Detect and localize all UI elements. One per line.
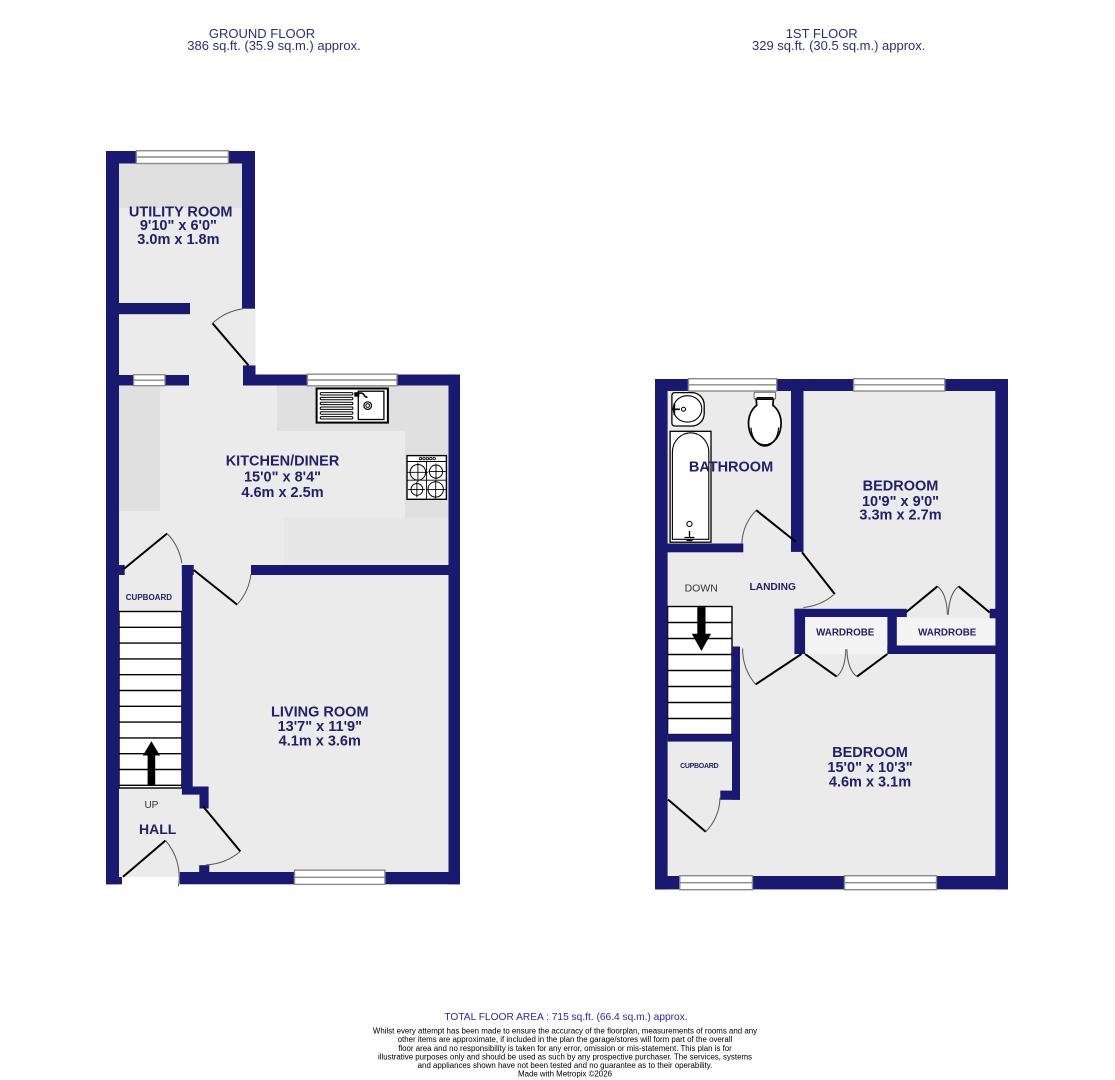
svg-text:WARDROBE: WARDROBE <box>816 628 875 639</box>
svg-text:3.0m x 1.8m: 3.0m x 1.8m <box>137 232 219 248</box>
svg-text:DOWN: DOWN <box>685 583 718 595</box>
svg-text:13'7" x 11'9": 13'7" x 11'9" <box>278 719 362 735</box>
svg-text:HALL: HALL <box>139 821 177 837</box>
svg-text:UP: UP <box>144 800 158 811</box>
svg-text:15'0" x 8'4": 15'0" x 8'4" <box>244 470 321 486</box>
svg-text:BEDROOM: BEDROOM <box>863 479 939 495</box>
svg-text:CUPBOARD: CUPBOARD <box>126 593 172 602</box>
svg-text:386 sq.ft. (35.9 sq.m.) approx: 386 sq.ft. (35.9 sq.m.) approx. <box>187 38 360 53</box>
svg-text:KITCHEN/DINER: KITCHEN/DINER <box>226 453 340 469</box>
svg-text:LANDING: LANDING <box>749 582 795 593</box>
svg-text:Made with Metropix ©2026: Made with Metropix ©2026 <box>518 1070 613 1079</box>
svg-text:4.6m x 3.1m: 4.6m x 3.1m <box>829 775 911 791</box>
svg-text:3.3m x 2.7m: 3.3m x 2.7m <box>859 508 941 524</box>
svg-text:BATHROOM: BATHROOM <box>689 460 773 476</box>
svg-text:TOTAL FLOOR AREA : 715 sq.ft.: TOTAL FLOOR AREA : 715 sq.ft. (66.4 sq.m… <box>444 1012 687 1023</box>
svg-text:CUPBOARD: CUPBOARD <box>680 763 718 770</box>
svg-text:4.1m x 3.6m: 4.1m x 3.6m <box>279 734 361 750</box>
svg-text:4.6m x 2.5m: 4.6m x 2.5m <box>241 485 323 501</box>
svg-text:329 sq.ft. (30.5 sq.m.) approx: 329 sq.ft. (30.5 sq.m.) approx. <box>752 38 925 53</box>
svg-text:WARDROBE: WARDROBE <box>918 628 977 639</box>
svg-text:BEDROOM: BEDROOM <box>832 745 908 761</box>
